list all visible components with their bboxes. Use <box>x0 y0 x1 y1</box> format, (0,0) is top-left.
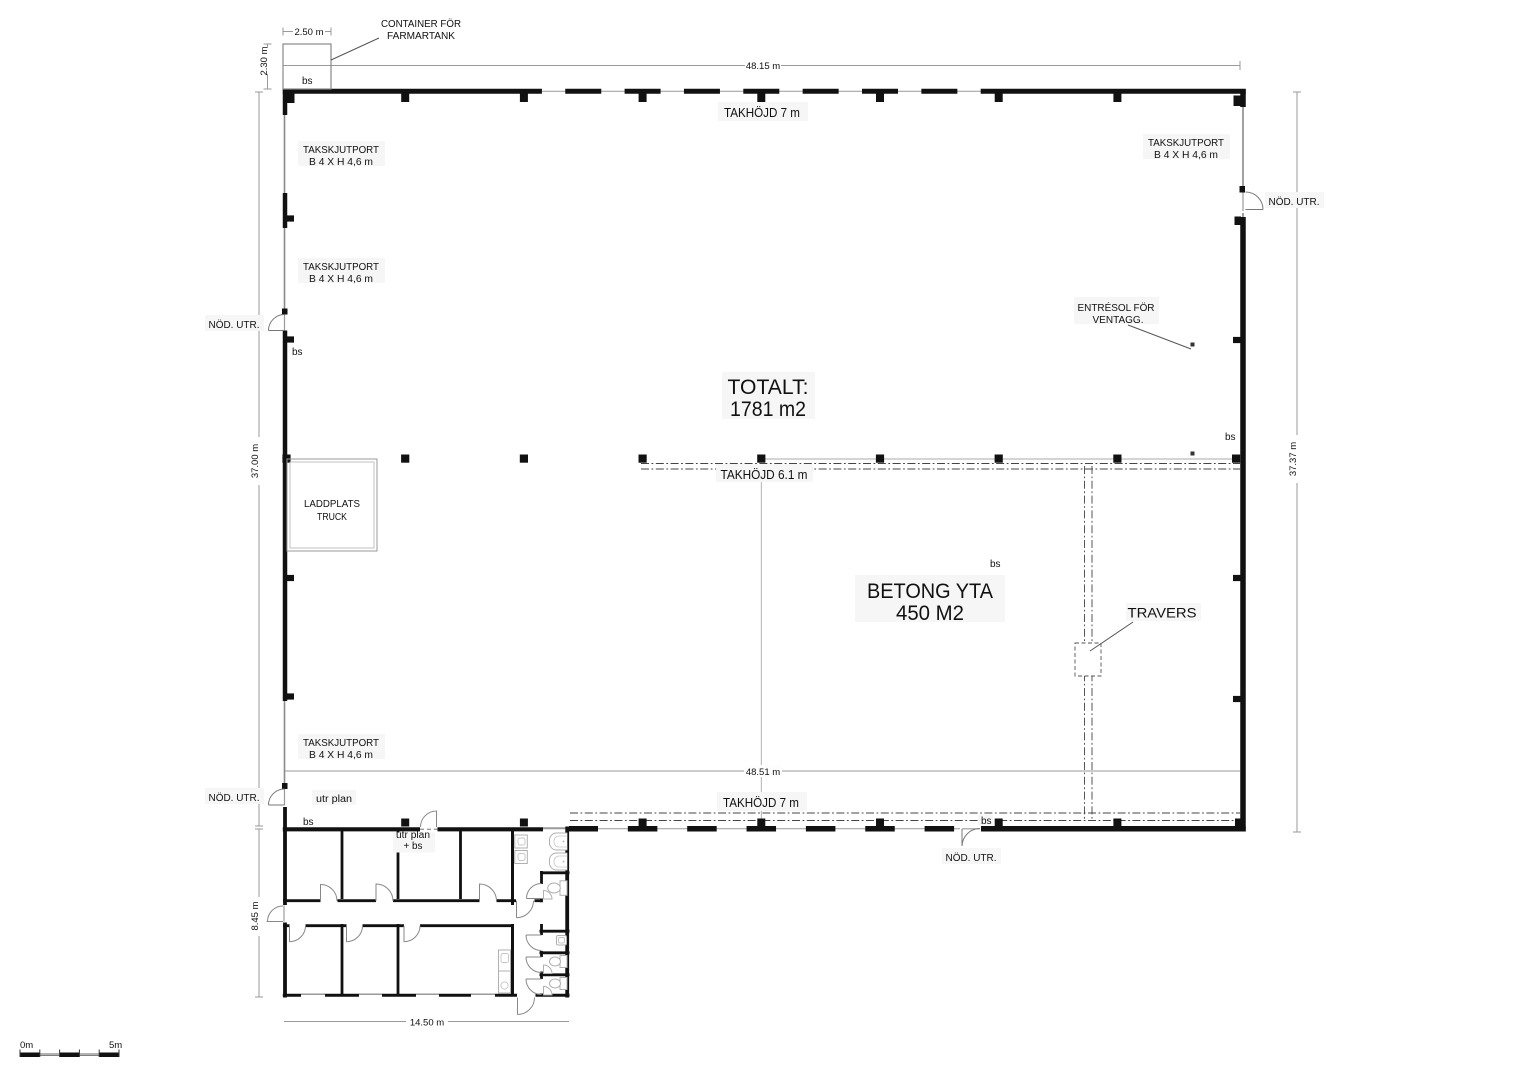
svg-text:LADDPLATS: LADDPLATS <box>304 499 360 510</box>
svg-text:TAKSKJUTPORT: TAKSKJUTPORT <box>303 144 380 156</box>
svg-text:48.51 m: 48.51 m <box>746 767 780 778</box>
svg-text:TRUCK: TRUCK <box>317 512 347 523</box>
svg-text:VENTAGG.: VENTAGG. <box>1093 314 1144 326</box>
svg-text:TAKSKJUTPORT: TAKSKJUTPORT <box>303 261 380 273</box>
svg-text:0m: 0m <box>20 1040 33 1051</box>
svg-text:utr plan: utr plan <box>316 794 352 805</box>
svg-text:2.30 m: 2.30 m <box>259 46 270 75</box>
svg-text:TAKSKJUTPORT: TAKSKJUTPORT <box>303 737 380 749</box>
svg-text:bs: bs <box>303 817 314 828</box>
svg-text:bs: bs <box>302 76 313 87</box>
svg-text:CONTAINER FÖR: CONTAINER FÖR <box>381 18 461 30</box>
svg-text:2.50 m: 2.50 m <box>294 27 323 38</box>
svg-text:ENTRÉSOL FÖR: ENTRÉSOL FÖR <box>1078 301 1155 314</box>
svg-text:NÖD. UTR.: NÖD. UTR. <box>1269 196 1320 208</box>
svg-text:FARMARTANK: FARMARTANK <box>387 30 455 42</box>
svg-text:bs: bs <box>990 559 1001 570</box>
svg-text:utr plan: utr plan <box>396 830 430 841</box>
svg-text:bs: bs <box>981 816 992 827</box>
svg-text:B 4 X H 4,6 m: B 4 X H 4,6 m <box>309 749 373 761</box>
svg-text:450 M2: 450 M2 <box>896 602 964 625</box>
svg-text:TAKHÖJD 7 m: TAKHÖJD 7 m <box>724 106 800 120</box>
svg-text:TRAVERS: TRAVERS <box>1128 606 1197 621</box>
svg-text:BETONG YTA: BETONG YTA <box>867 580 993 603</box>
svg-text:37.37 m: 37.37 m <box>1288 442 1299 476</box>
svg-text:+ bs: + bs <box>404 841 423 852</box>
svg-text:1781 m2: 1781 m2 <box>730 398 806 421</box>
svg-text:37.00 m: 37.00 m <box>250 444 261 478</box>
svg-text:bs: bs <box>292 347 303 358</box>
svg-text:TAKSKJUTPORT: TAKSKJUTPORT <box>1148 137 1225 149</box>
svg-text:NÖD. UTR.: NÖD. UTR. <box>946 852 997 864</box>
svg-text:bs: bs <box>1225 432 1236 443</box>
svg-text:B 4 X H 4,6 m: B 4 X H 4,6 m <box>309 273 373 285</box>
svg-text:B 4 X H 4,6 m: B 4 X H 4,6 m <box>1154 149 1218 161</box>
svg-text:5m: 5m <box>109 1040 122 1051</box>
svg-text:TOTALT:: TOTALT: <box>728 376 809 399</box>
svg-text:14.50 m: 14.50 m <box>410 1018 444 1029</box>
svg-text:48.15 m: 48.15 m <box>746 61 780 72</box>
svg-text:B 4 X H 4,6 m: B 4 X H 4,6 m <box>309 156 373 168</box>
svg-text:8.45 m: 8.45 m <box>250 901 261 930</box>
svg-text:NÖD. UTR.: NÖD. UTR. <box>209 319 260 331</box>
svg-text:TAKHÖJD 7 m: TAKHÖJD 7 m <box>723 796 799 810</box>
svg-text:NÖD. UTR.: NÖD. UTR. <box>209 792 260 804</box>
svg-text:TAKHÖJD 6.1 m: TAKHÖJD 6.1 m <box>721 468 808 482</box>
